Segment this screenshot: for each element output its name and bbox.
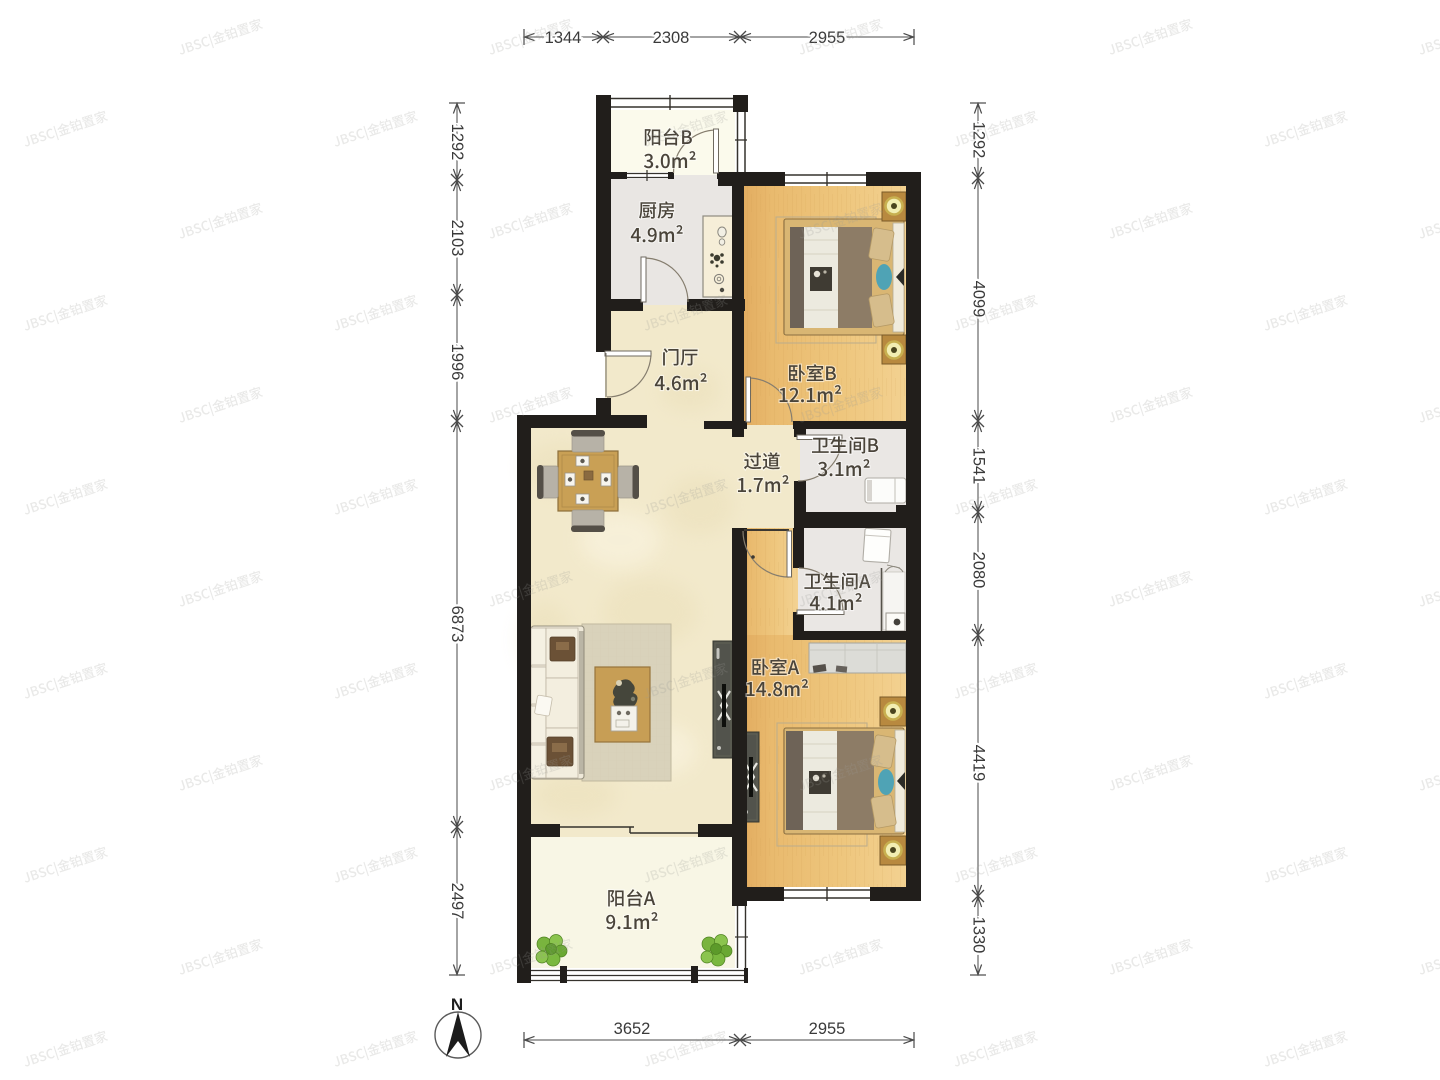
svg-text:2308: 2308	[653, 29, 690, 47]
svg-text:2103: 2103	[448, 220, 466, 257]
svg-text:4419: 4419	[970, 745, 988, 782]
svg-text:1541: 1541	[970, 448, 988, 485]
svg-text:1996: 1996	[448, 344, 466, 381]
svg-text:3652: 3652	[614, 1020, 651, 1038]
svg-text:2080: 2080	[970, 552, 988, 589]
svg-text:2955: 2955	[809, 1020, 846, 1038]
svg-text:1330: 1330	[970, 917, 988, 954]
svg-text:6873: 6873	[448, 606, 466, 643]
svg-text:1292: 1292	[448, 124, 466, 161]
svg-text:2497: 2497	[448, 883, 466, 920]
svg-text:N: N	[451, 995, 463, 1014]
